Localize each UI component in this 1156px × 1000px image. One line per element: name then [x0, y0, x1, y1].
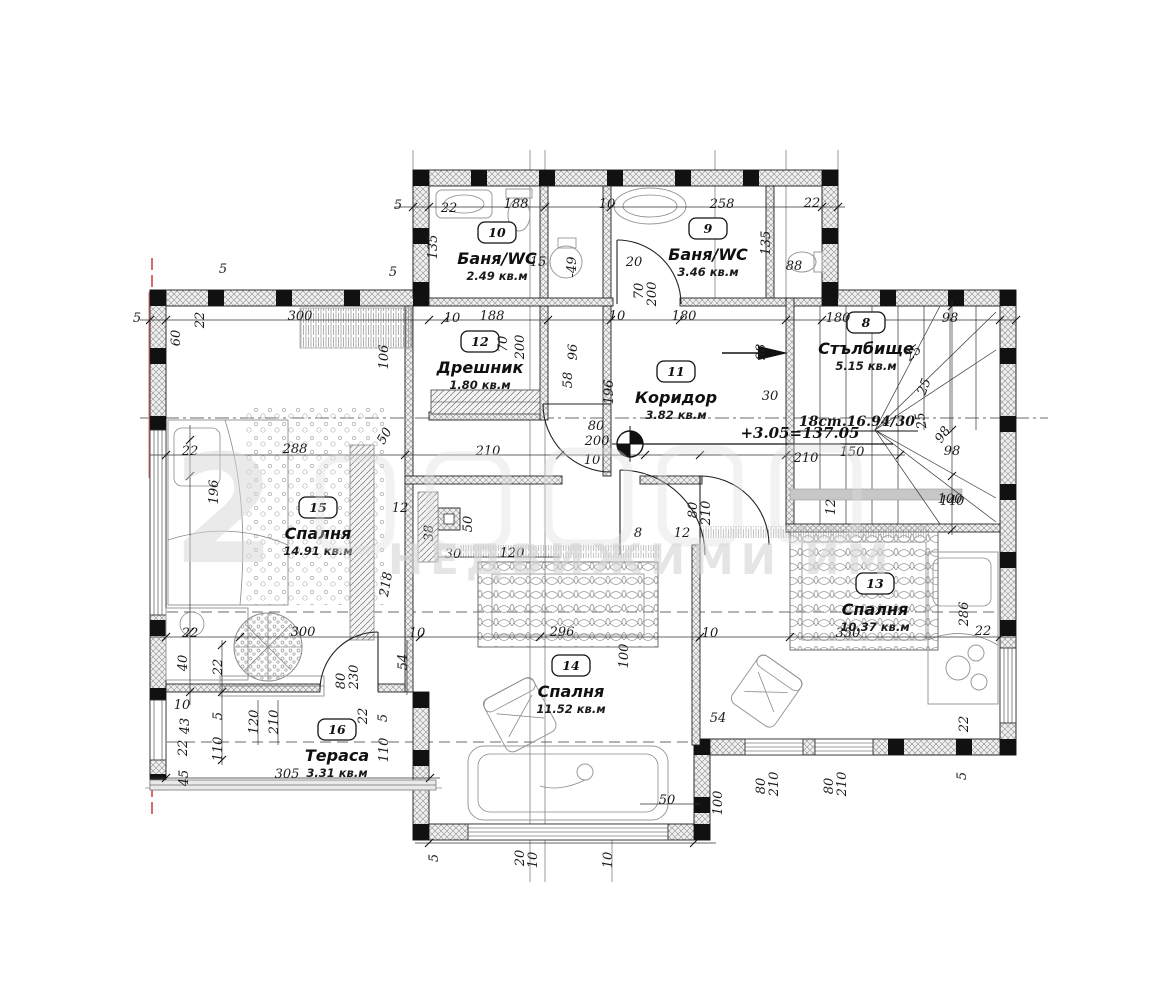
dim-label: 5 [427, 854, 442, 862]
interior-wall [540, 186, 548, 298]
room-number: 12 [471, 334, 489, 349]
room-name: Коридор [635, 388, 717, 407]
room-name: Спалня [538, 682, 605, 701]
dim-label: 22 [176, 740, 191, 758]
interior-wall [166, 684, 320, 692]
dim-label: 12 [824, 499, 839, 516]
dim-label: 5 [211, 712, 226, 720]
wardrobe-bedroom15-right [350, 445, 374, 640]
window-bottom-bedroom13-a [745, 739, 803, 755]
dim-label: -49 [565, 257, 580, 278]
dim-label: 10 [702, 626, 719, 641]
dim-label: 5 [389, 265, 397, 280]
dim-label: 10 [526, 852, 541, 869]
dim-label: 210 [835, 772, 850, 798]
wardrobe-bedroom15-top [300, 308, 412, 348]
dim-label: 5 [133, 311, 141, 326]
bed-bedroom14 [468, 746, 668, 820]
room-number: 11 [667, 364, 684, 379]
room-area: 3.31 кв.м [306, 766, 368, 780]
dim-label: 70 [496, 336, 511, 353]
dim-label: 25 [914, 376, 934, 398]
room-number: 14 [562, 658, 579, 673]
sink-bath9 [614, 188, 686, 224]
column-bedroom14 [438, 508, 460, 530]
dim-label: 22 [957, 716, 972, 734]
dim-label: 22 [211, 659, 226, 677]
room-area: 2.49 кв.м [466, 269, 528, 283]
room-name: Тераса [305, 746, 369, 765]
room-label-10: 10Баня/WC2.49 кв.м [457, 222, 537, 283]
dim-label: 230 [347, 665, 362, 691]
dim-label: 30 [762, 389, 779, 404]
dim-label: 10 [601, 852, 616, 869]
dim-label: 110 [211, 737, 226, 762]
room-area: 11.52 кв.м [536, 702, 606, 716]
wall [822, 290, 1016, 306]
dim-label: 5 [219, 262, 227, 277]
dim-label: 25 [913, 411, 931, 431]
dim-label: 43 [178, 718, 193, 736]
dim-label: 200 [645, 282, 660, 308]
dim-label: 98 [754, 344, 769, 361]
dim-label: 135 [759, 231, 774, 256]
armchair-bedroom13 [729, 653, 805, 730]
room-number: 9 [704, 221, 713, 236]
room-label-11: 11Коридор3.82 кв.м [635, 361, 717, 422]
dim-label: 305 [275, 767, 300, 782]
room-name: Баня/WC [668, 245, 748, 264]
interior-wall [680, 298, 822, 306]
dim-label: 98 [944, 444, 961, 459]
dim-label: 5 [955, 772, 970, 780]
room-area: 1.80 кв.м [449, 378, 511, 392]
dim-label: 180 [826, 311, 851, 326]
dim-label: 100 [711, 791, 726, 816]
dim-label: 350 [836, 626, 861, 641]
dim-label: 10 [609, 309, 626, 324]
room-name: Баня/WC [457, 249, 537, 268]
dim-label: 100 [938, 492, 963, 507]
dim-label: 5 [376, 714, 391, 722]
dim-label: 80 [588, 419, 605, 434]
fixtures [166, 188, 998, 820]
dim-label: 60 [169, 330, 184, 347]
dim-label: 22 [193, 312, 208, 330]
dim-label: 45 [177, 770, 192, 788]
room-name: Спалня [842, 600, 909, 619]
room-name: Стълбище [818, 339, 914, 358]
dim-label: 10 [174, 698, 191, 713]
stair-landing [790, 489, 962, 500]
dim-label: 210 [793, 451, 819, 466]
room-label-14: 14Спалня11.52 кв.м [536, 655, 606, 716]
dim-label: 15 [530, 255, 547, 270]
dim-label: 10 [409, 626, 426, 641]
interior-wall [540, 306, 548, 420]
dim-label: 50 [659, 793, 676, 808]
window-bottom-bedroom13-b [815, 739, 873, 755]
dim-label: 210 [267, 710, 282, 736]
dim-label: 135 [426, 235, 441, 260]
watermark-big-glyph: 2 [172, 424, 276, 598]
room-number: 10 [488, 225, 506, 240]
dim-label: 210 [767, 772, 782, 798]
dim-label: 98 [932, 424, 954, 446]
window-right-bedroom13 [1000, 648, 1016, 723]
dim-label: 98 [942, 311, 959, 326]
dim-label: 300 [288, 309, 313, 324]
dim-label: 96 [566, 344, 581, 361]
room-area: 3.82 кв.м [645, 408, 707, 422]
dim-label: 54 [710, 711, 727, 726]
stairs-note: 18ст.16.94/30 [799, 414, 915, 430]
dim-label: 100 [617, 644, 632, 669]
dim-label: 106 [377, 345, 392, 370]
dim-label: 120 [247, 710, 262, 735]
dim-label: 296 [549, 625, 575, 640]
room-area: 5.15 кв.м [835, 359, 897, 373]
dim-label: 22 [356, 708, 371, 726]
dim-label: 5 [394, 198, 402, 213]
room-number: 16 [328, 722, 346, 737]
room-area: 3.46 кв.м [677, 265, 739, 279]
dim-label: 180 [672, 309, 697, 324]
dim-label: 258 [709, 197, 735, 212]
plant-bedroom15 [234, 613, 302, 681]
dim-label: 288 [282, 442, 308, 457]
dim-label: 200 [584, 434, 610, 449]
dim-label: 300 [291, 625, 316, 640]
room-label-12: 12Дрешник1.80 кв.м [436, 331, 525, 392]
floor-plan: +3.05=137.05 18ст.16.94/30 10Баня/WC2.49… [0, 0, 1156, 1000]
room-name: Дрешник [436, 358, 525, 377]
dim-label: 286 [957, 602, 972, 628]
room-label-16: 16Тераса3.31 кв.м [305, 719, 369, 780]
dim-label: 40 [176, 655, 191, 673]
dim-label: 22 [803, 196, 821, 211]
dim-label: 50 [461, 516, 476, 533]
room-label-9: 9Баня/WC3.46 кв.м [668, 218, 748, 279]
window-left-terrace [150, 700, 166, 760]
watermark-subtitle: НЕДВИЖИМИ ИМ [388, 535, 896, 584]
floor-plan-svg: +3.05=137.05 18ст.16.94/30 10Баня/WC2.49… [0, 0, 1156, 1000]
dim-label: 20 [625, 255, 643, 270]
room-number: 8 [862, 315, 871, 330]
dim-label: 110 [377, 738, 392, 763]
dim-label: 200 [513, 335, 528, 361]
interior-wall [429, 298, 613, 306]
interior-wall [640, 476, 702, 484]
dim-label: 88 [786, 259, 803, 274]
stairs-note-group: 18ст.16.94/30 [797, 414, 918, 431]
dim-label: 22 [440, 201, 458, 216]
dim-label: 10 [444, 311, 461, 326]
dim-label: 188 [480, 309, 505, 324]
plant-bedroom13 [946, 645, 987, 690]
window-bottom-bedroom14 [468, 824, 668, 840]
dim-label: 188 [504, 197, 529, 212]
interior-wall [378, 684, 405, 692]
dim-label: 210 [699, 501, 714, 527]
dim-label: 196 [602, 380, 617, 405]
dim-label: 22 [974, 624, 992, 639]
dim-label: 58 [561, 372, 576, 389]
wardrobe-dreshnik [431, 390, 540, 414]
dim-label: 10 [599, 197, 616, 212]
dim-label: 54 [396, 654, 411, 671]
dim-label: 22 [181, 626, 199, 641]
